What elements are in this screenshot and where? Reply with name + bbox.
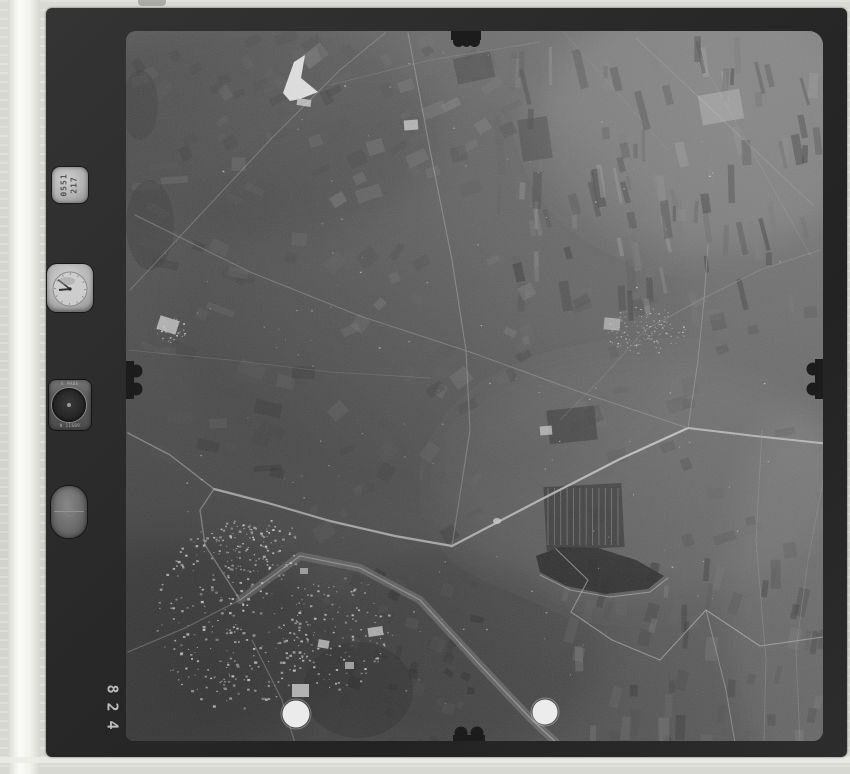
margin-bubble-level-icon	[51, 486, 87, 538]
aerial-photo-scene	[126, 31, 823, 741]
margin-altimeter: E MADE N 11609	[49, 380, 91, 430]
altimeter-top-label: E MADE	[49, 380, 91, 387]
frame-number: 8 2 4	[101, 680, 125, 734]
frame-digit: 4	[104, 720, 122, 729]
margin-id-plate: 0551 217	[52, 167, 88, 203]
clock-face-icon	[47, 264, 93, 312]
altimeter-dial-icon	[52, 388, 86, 422]
altimeter-bottom-label: N 11609	[49, 422, 91, 429]
vignette-light	[126, 31, 823, 741]
id-plate-line1: 0551	[60, 173, 70, 196]
frame-digit: 8	[104, 684, 122, 693]
mat-white-strip	[8, 0, 40, 774]
scanned-film-mat: 0551 217 E MADE N 11609 8 2 4	[0, 0, 850, 774]
aerial-photograph	[126, 31, 823, 741]
id-plate-line2: 217	[70, 173, 80, 196]
id-plate-text: 0551 217	[60, 173, 80, 196]
margin-clock-dial	[47, 264, 93, 312]
mat-bottom-band	[0, 757, 850, 763]
mat-smudge	[138, 0, 166, 6]
frame-digit: 2	[104, 702, 122, 711]
